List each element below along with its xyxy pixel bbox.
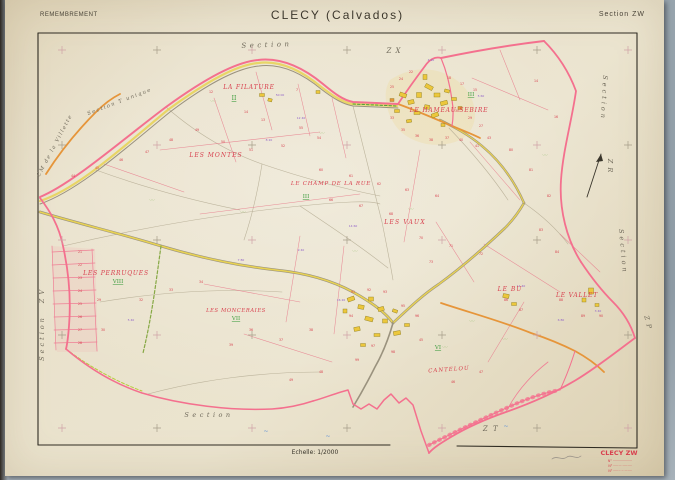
parcel-number: 45 <box>419 338 423 342</box>
parcel-number: 41 <box>475 144 479 148</box>
north-arrow-head <box>596 154 603 162</box>
parcel-number: 12 40 <box>297 116 306 120</box>
parcel-number: 64 <box>435 194 439 198</box>
grid-cross <box>153 141 161 149</box>
building <box>441 124 445 127</box>
parcel-number: 52 <box>281 144 285 148</box>
building <box>392 309 398 314</box>
parcel-line-5 <box>160 132 320 150</box>
parcel-number: 14 60 <box>349 224 358 228</box>
parcel-number: 26 <box>78 315 82 319</box>
building <box>390 99 394 102</box>
parcel-number: 99 <box>355 358 359 362</box>
parcel-number: 36 <box>415 134 419 138</box>
grid-cross <box>533 236 541 244</box>
parcel-number: 40 <box>459 138 463 142</box>
parcel-number: 98 <box>391 350 395 354</box>
parcel-line-6 <box>200 194 360 214</box>
numeral-iii-champ: III <box>303 194 310 200</box>
parcel-line-12 <box>204 284 300 302</box>
parcel-number: 14 <box>534 79 538 83</box>
grid-cross <box>343 46 351 54</box>
place-les-vaux: LES VAUX <box>383 219 426 226</box>
parcel-number: 22 <box>409 70 413 74</box>
building <box>347 296 355 302</box>
grid-cross <box>153 424 161 432</box>
parcel-number: 49 <box>289 378 293 382</box>
parcel-number: 28 <box>78 341 82 345</box>
parcel-number: 95 <box>401 304 405 308</box>
place-la-filature: LA FILATURE <box>222 84 275 91</box>
parcel-number: ~ <box>263 428 268 435</box>
field-line-d <box>244 164 262 240</box>
parcel-number: 6 80 <box>558 318 565 322</box>
grid-cross <box>438 331 446 339</box>
parcel-number: 93 <box>383 290 387 294</box>
boundary-right-upper <box>544 41 581 262</box>
field-line-f <box>300 206 388 268</box>
building <box>369 297 374 301</box>
parcel-number: ◡◡ <box>149 197 155 201</box>
boundary-topright <box>441 41 544 58</box>
parcel-number: 29 <box>97 298 101 302</box>
parcel-number: 90 <box>599 314 603 318</box>
parcel-number: 39 <box>229 343 233 347</box>
parcel-number: 4 20 <box>428 58 435 62</box>
parcel-number: 66 <box>329 198 333 202</box>
place-le-hameau-sebire: LE HAMEAU SEBIRE <box>409 107 489 114</box>
building <box>316 91 320 94</box>
parcel-number: 38 <box>309 328 313 332</box>
parcel-number: 9 40 <box>298 248 305 252</box>
parcel-number: 8 20 <box>266 138 273 142</box>
parcel-number: 46 <box>119 158 123 162</box>
parcel-number: 81 <box>529 168 533 172</box>
parcel-number: ◡◡ <box>542 152 548 156</box>
parcel-number: 21 <box>78 250 82 254</box>
parcel-number: 3 40 <box>595 309 602 313</box>
stamp-line-3: N° ······· ·· ······· <box>608 469 631 473</box>
parcel-number: 73 <box>429 260 433 264</box>
grid-cross <box>438 236 446 244</box>
road-south-casing <box>353 323 393 407</box>
grid-cross <box>438 46 446 54</box>
place-les-montes: LES MONTES <box>188 152 242 159</box>
building <box>423 75 427 80</box>
building <box>383 319 388 323</box>
building <box>512 303 517 306</box>
parcel-number: 27 <box>78 328 82 332</box>
section-bottom-zt: Z T <box>482 425 499 433</box>
road-cm-villette: CM de la Villette <box>36 113 74 177</box>
parcel-number: 36 <box>249 328 253 332</box>
field-line-h <box>100 290 282 302</box>
place-cantelou: CANTELOU <box>428 366 470 375</box>
numeral-viii: VIII <box>112 279 124 285</box>
grid-cross <box>624 141 632 149</box>
parcel-number: 23 <box>78 276 82 280</box>
parcel-number: ◡◡ <box>319 130 325 134</box>
parcel-number: 34 <box>199 280 203 284</box>
grid-cross <box>438 424 446 432</box>
parcel-number: 33 <box>390 116 394 120</box>
building <box>405 324 410 327</box>
place-le-champ-de-la-rue: LE CHAMP DE LA RUE <box>290 181 371 187</box>
parcel-number: 37 <box>445 136 449 140</box>
parcel-number: 45 <box>95 166 99 170</box>
grid-cross <box>533 331 541 339</box>
parcel-number: 83 <box>539 228 543 232</box>
boundary-bottomleft <box>66 349 313 409</box>
section-bottom: Section <box>184 411 233 419</box>
parcel-number: 30 <box>101 328 105 332</box>
parcel-number: 16 20 <box>337 298 346 302</box>
section-left: Section <box>38 315 46 361</box>
numeral-vi: VI <box>434 345 441 351</box>
grid-cross <box>58 424 66 432</box>
parcel-number: 92 <box>367 288 371 292</box>
section-t-unique: Section T unique <box>87 87 153 117</box>
parcel-number: 47 <box>479 370 483 374</box>
map-canvas: 2524221817153029273335363837404143121413… <box>0 0 675 480</box>
building <box>361 344 366 347</box>
parcel-number: 24 <box>78 289 82 293</box>
parcel-number: 44 <box>71 174 75 178</box>
parcel-number: 25 <box>78 302 82 306</box>
parcel-number: 22 <box>78 263 82 267</box>
grid-cross <box>624 331 632 339</box>
place-les-perruques: LES PERRUQUES <box>82 270 149 277</box>
grid-cross <box>248 331 256 339</box>
grid-cross <box>533 424 541 432</box>
section-right-top: Section <box>599 75 609 121</box>
stamp-title: CLECY ZW <box>601 449 638 457</box>
building <box>417 93 422 98</box>
parcel-number: ◡◡ <box>502 336 508 340</box>
parcel-number: 87 <box>519 308 523 312</box>
parcel-number: 25 <box>390 85 394 89</box>
section-right-zr: Z R <box>606 158 614 173</box>
parcel-number: 48 <box>319 370 323 374</box>
grid-cross <box>58 236 66 244</box>
building <box>268 98 273 102</box>
parcel-number: 63 <box>405 188 409 192</box>
parcel-number: 7 80 <box>238 258 245 262</box>
parcel-number: 38 <box>429 138 433 142</box>
section-top: Section <box>241 40 292 50</box>
stamp-line-1: N° ··················· <box>608 459 632 463</box>
building <box>374 334 380 337</box>
building <box>358 305 365 310</box>
green-dash-1 <box>143 246 161 353</box>
parcel-number: ~ <box>503 423 508 430</box>
stamp-line-2: N° ········ ········· <box>608 464 631 468</box>
grid-cross <box>624 46 632 54</box>
parcel-number: 32 <box>139 298 143 302</box>
parcel-number: 13 <box>261 118 265 122</box>
parcel-number: 5 60 <box>478 94 485 98</box>
parcel-number: 62 <box>377 182 381 186</box>
grid-cross <box>624 424 632 432</box>
parcel-number: 17 <box>460 82 464 86</box>
parcel-number: 70 <box>419 236 423 240</box>
parcel-number: 16 <box>554 115 558 119</box>
parcel-number: 43 <box>487 136 491 140</box>
parcel-number: 33 <box>169 288 173 292</box>
parcel-line-13 <box>244 334 332 362</box>
numeral-vii: VII <box>231 316 240 322</box>
parcel-number: 29 <box>468 116 472 120</box>
parcel-number: 84 <box>555 250 559 254</box>
grid-cross <box>533 46 541 54</box>
parcel-number: 12 <box>209 90 213 94</box>
parcel-number: ◡◡ <box>352 248 358 252</box>
place-le-bu: LE BU <box>497 286 523 293</box>
parcel-number: 61 <box>349 174 353 178</box>
building <box>354 327 361 332</box>
parcel-number: 96 <box>415 314 419 318</box>
parcel-line-4 <box>332 98 346 158</box>
parcel-number: 46 <box>451 380 455 384</box>
parcel-number: ~ <box>325 433 330 440</box>
section-right-zp: Z P <box>642 314 654 331</box>
parcel-line-10 <box>334 246 344 334</box>
building <box>365 316 374 322</box>
grid-cross <box>533 141 541 149</box>
grid-cross <box>58 46 66 54</box>
parcel-number: ◡◡ <box>408 206 414 210</box>
place-les-monceraies: LES MONCERAIES <box>205 308 266 314</box>
building <box>434 93 440 97</box>
parcel-number: 24 <box>399 77 403 81</box>
field-line-c <box>353 106 393 280</box>
parcel-number: ◡◡ <box>210 98 216 102</box>
parcel-line-16 <box>560 234 600 272</box>
parcel-number: 50 00 <box>276 93 285 97</box>
parcel-number: 72 <box>479 252 483 256</box>
pencil-mark <box>552 456 581 459</box>
field-line-e <box>96 170 240 210</box>
grid-cross <box>248 236 256 244</box>
parcel-number: 68 <box>389 212 393 216</box>
parcel-number: 54 <box>317 136 321 140</box>
building <box>393 330 401 335</box>
parcel-number: 5 40 <box>128 318 135 322</box>
parcel-number: 48 <box>169 138 173 142</box>
parcel-line-17 <box>104 164 184 192</box>
field-line-i <box>148 372 320 394</box>
green-dash-3 <box>66 349 142 391</box>
parcel-number: ◡◡ <box>442 344 448 348</box>
parcel-number: 14 <box>244 110 248 114</box>
parcel-number: 27 <box>479 124 483 128</box>
parcel-number: 50 <box>221 140 225 144</box>
numeral-iii-village: III <box>468 92 475 98</box>
parcel-number: 18 <box>447 76 451 80</box>
field-line-a <box>63 202 380 246</box>
scale-label: Echelle: 1/2000 <box>292 449 339 456</box>
building <box>595 304 599 307</box>
building <box>260 94 265 97</box>
section-left-zv: Z V <box>38 289 46 305</box>
parcel-number: 80 <box>509 148 513 152</box>
building <box>452 98 457 101</box>
parcel-number: 89 <box>581 314 585 318</box>
boundary-bottom-zigzag <box>313 390 429 453</box>
parcel-number: 97 <box>371 344 375 348</box>
grid-cross <box>343 141 351 149</box>
grid-cross <box>153 46 161 54</box>
parcel-number: 67 <box>359 204 363 208</box>
parcel-number: 82 <box>547 194 551 198</box>
parcel-number: 7 <box>296 88 298 92</box>
parcel-line-7 <box>404 150 420 242</box>
grid-cross <box>343 331 351 339</box>
road-se-orange <box>441 303 604 372</box>
parcel-number: 55 <box>299 126 303 130</box>
building <box>395 110 400 113</box>
building <box>343 309 347 313</box>
parcel-line-19 <box>500 50 520 100</box>
parcel-number: 49 <box>195 128 199 132</box>
parcel-number: ◡◡ <box>469 318 475 322</box>
numeral-ii: II <box>232 95 237 102</box>
parcel-number: 60 <box>319 168 323 172</box>
parcel-number: 51 <box>249 148 253 152</box>
parcel-number: 35 <box>401 128 405 132</box>
grid-cross <box>343 236 351 244</box>
parcel-number: ◡◡ <box>240 209 246 213</box>
building <box>406 119 411 123</box>
left-parcels-wash <box>52 246 98 352</box>
parcel-number: 91 <box>351 290 355 294</box>
grid-cross <box>343 424 351 432</box>
map-frame-bottom <box>38 445 637 448</box>
parcel-number: 71 <box>449 244 453 248</box>
parcel-number: 47 <box>145 150 149 154</box>
parcel-number: 86 <box>504 298 508 302</box>
section-top-zx: Z X <box>385 47 401 55</box>
parcel-number: 37 <box>279 338 283 342</box>
section-right-lower: Section <box>617 229 629 275</box>
grid-cross <box>153 331 161 339</box>
scanned-cadastral-sheet: { "header": { "left": "REMEMBREMENT", "t… <box>0 0 675 480</box>
place-le-vallet: LE VALLET <box>555 292 598 299</box>
grid-cross <box>248 424 256 432</box>
parcel-number: 94 <box>349 314 353 318</box>
